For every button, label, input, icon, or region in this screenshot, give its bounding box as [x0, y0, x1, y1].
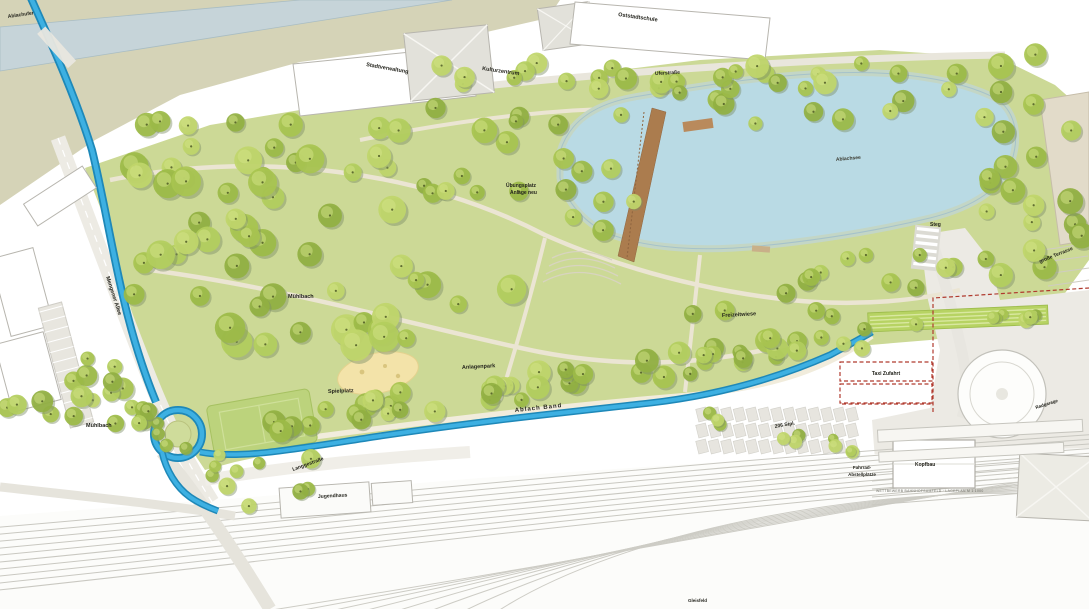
zebra-crossing — [911, 225, 941, 271]
label-kopfbau: Kopfbau — [915, 462, 935, 468]
site-plan-map: Ablachufer Stadtverwaltung Kulturzentrum… — [0, 0, 1089, 609]
label-uebungsplatz-2: Anlage neu — [510, 190, 537, 196]
label-spielplatz: Spielplatz — [328, 388, 354, 395]
label-gleisfeld: Gleisfeld — [688, 598, 707, 603]
label-zufahrt: Taxi Zufahrt — [872, 371, 901, 377]
credit-line: WETTBEWERB BAHNHOFSUMFELD · LAGEPLAN M 1… — [876, 489, 984, 493]
label-uebungsplatz-1: Übungsplatz — [506, 182, 536, 189]
label-fahrrad-1: Fahrrad- — [853, 465, 872, 470]
lake-dock-south — [752, 245, 770, 252]
label-fahrrad-2: Abstellplätze — [848, 472, 876, 477]
label-muehlbach-sued: Mühlbach — [86, 423, 112, 429]
label-steg: Steg — [930, 222, 941, 228]
label-muehlbach-nord: Mühlbach — [288, 294, 314, 300]
